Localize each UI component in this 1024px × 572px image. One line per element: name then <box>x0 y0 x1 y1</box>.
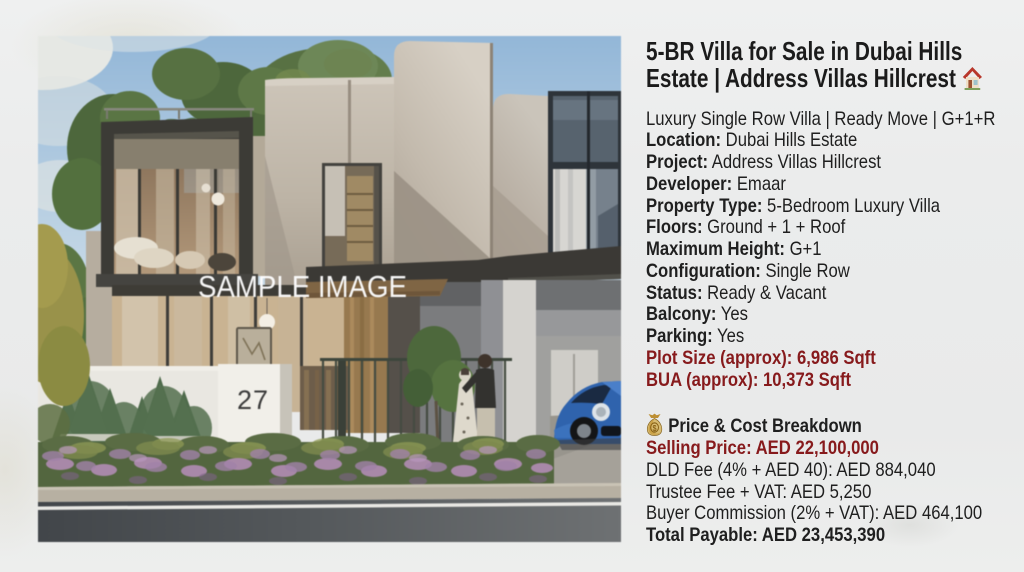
svg-text:27: 27 <box>237 385 269 415</box>
svg-text:SAMPLE IMAGE: SAMPLE IMAGE <box>198 269 407 304</box>
svg-text:$: $ <box>653 424 658 434</box>
